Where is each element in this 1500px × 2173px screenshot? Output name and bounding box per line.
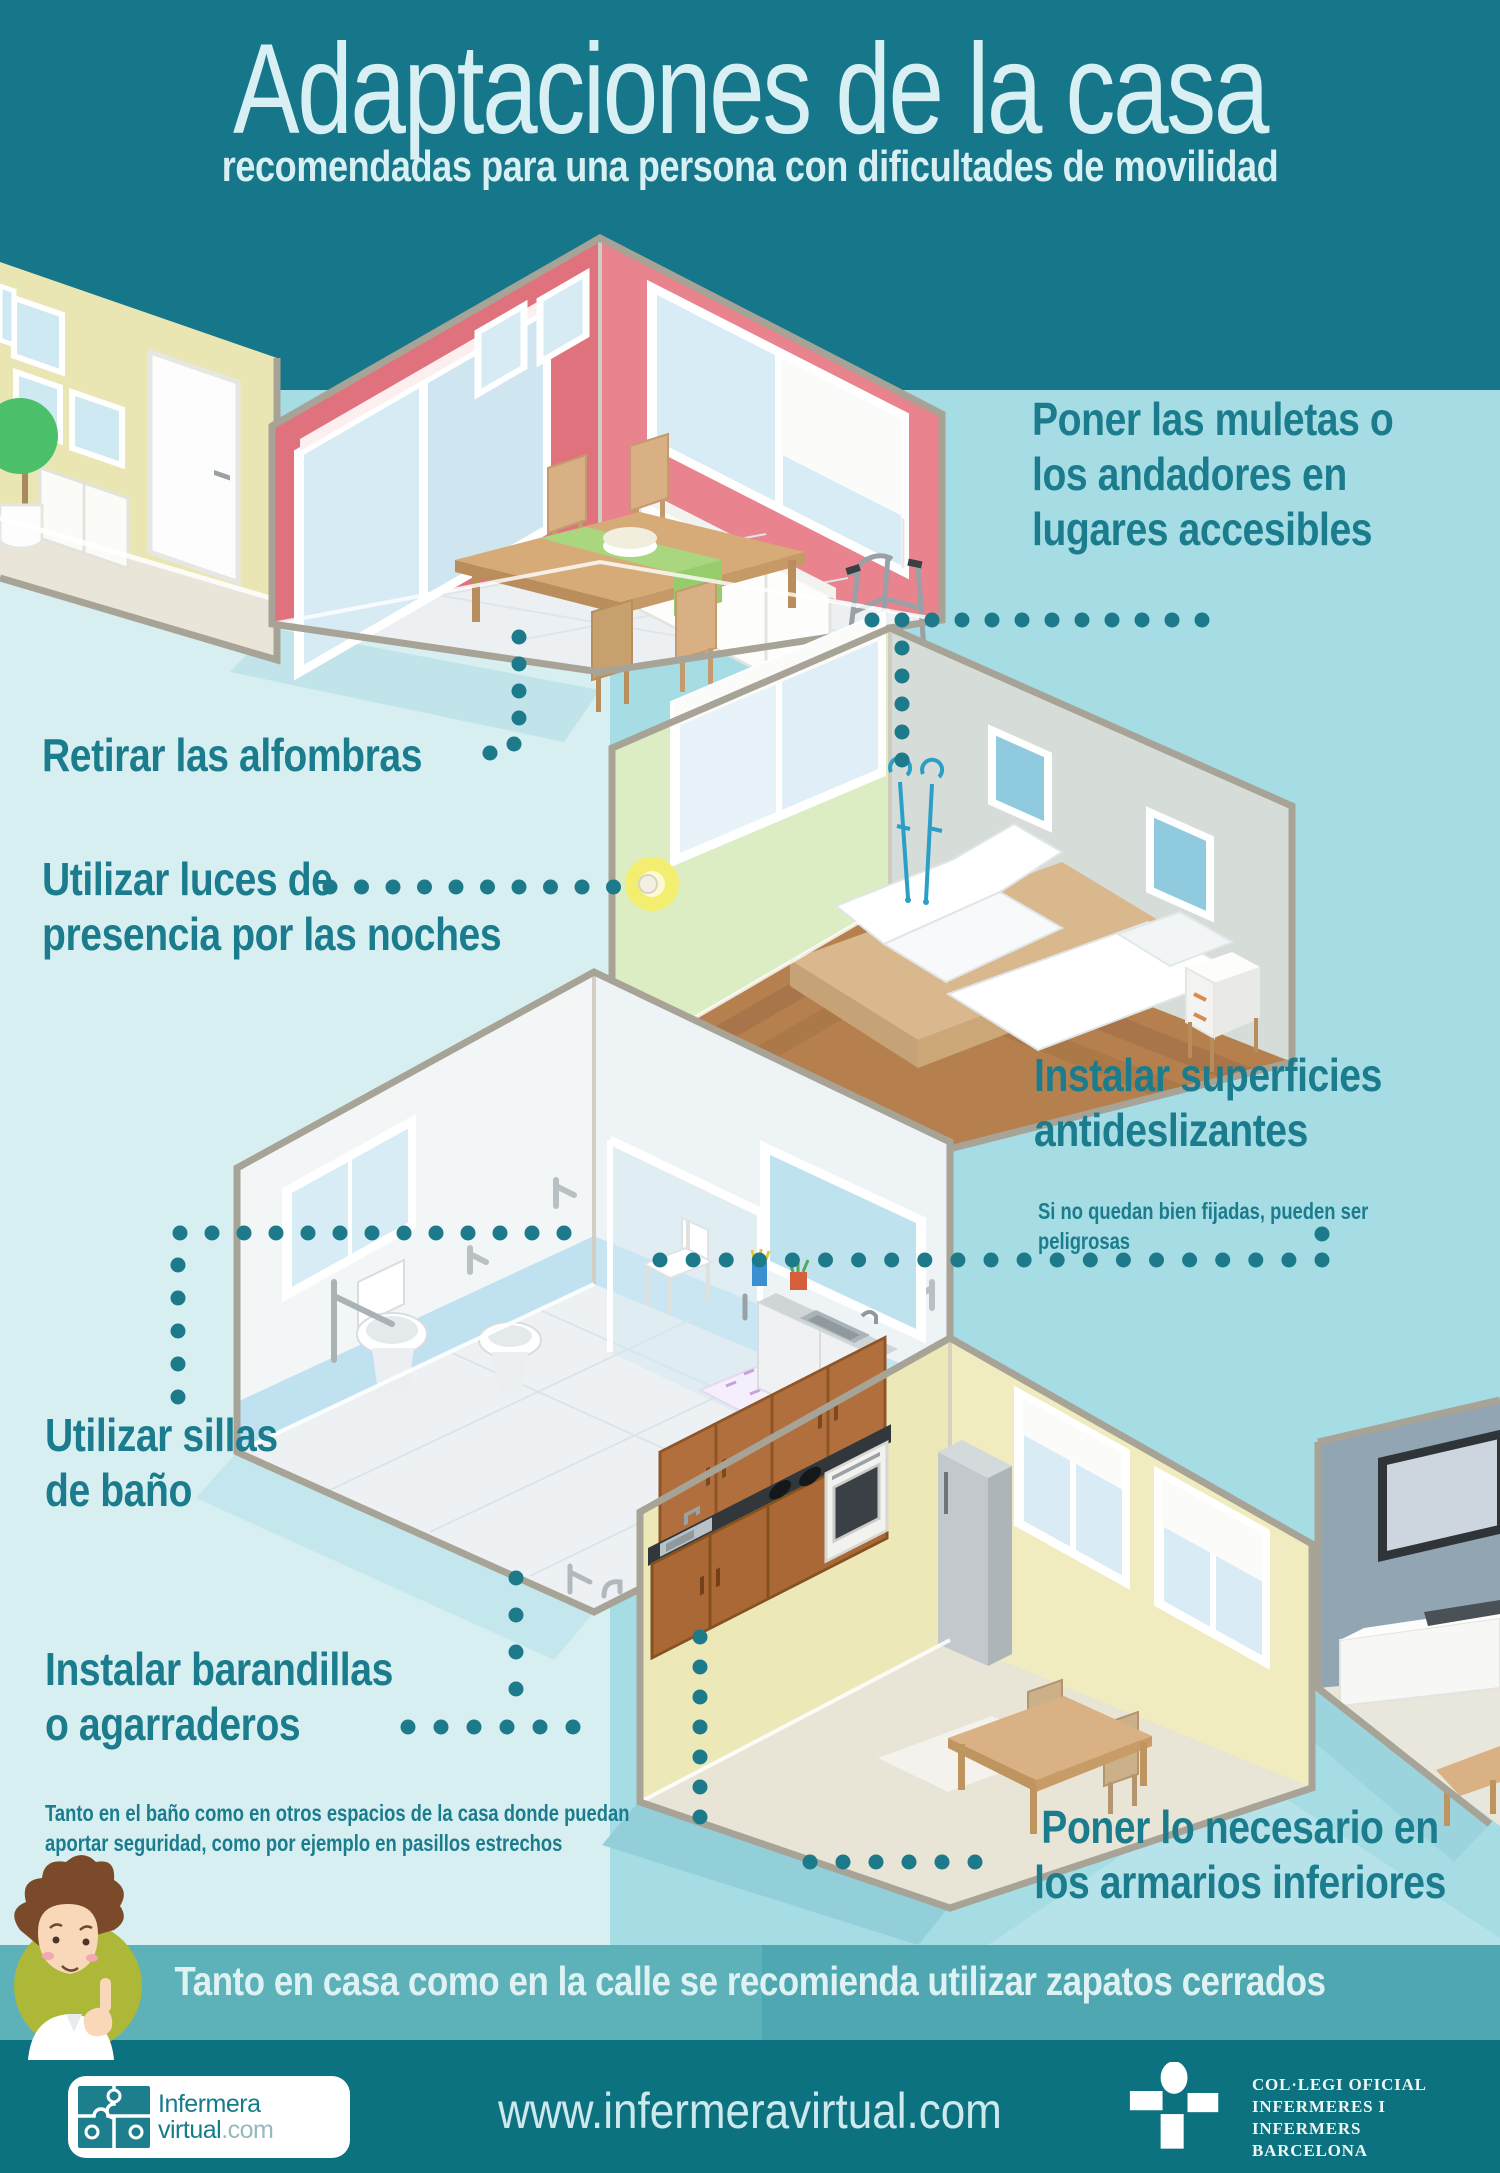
hallway-door — [150, 352, 238, 582]
logo-line1: Infermera — [158, 2090, 260, 2118]
tip-lights: Utilizar luces de presencia por las noch… — [42, 852, 501, 962]
tip-rails-note: Tanto en el baño como en otros espacios … — [45, 1798, 630, 1859]
college-line-2: INFERMERES I INFERMERS — [1252, 2096, 1500, 2140]
tip-crutches: Poner las muletas o los andadores en lug… — [1032, 392, 1393, 558]
tip-surfaces-note: Si no quedan bien fijadas, pueden ser pe… — [1038, 1196, 1408, 1257]
college-line-1: COL·LEGI OFICIAL — [1252, 2074, 1500, 2096]
band-text: Tanto en casa como en la calle se recomi… — [113, 1958, 1388, 2005]
tip-rugs: Retirar las alfombras — [42, 728, 422, 783]
college-cross-icon — [1128, 2062, 1224, 2170]
tip-chairs: Utilizar sillas de baño — [45, 1408, 278, 1518]
logo-line2: virtual — [158, 2116, 221, 2144]
refrigerator — [938, 1440, 1012, 1666]
logo-suffix: .com — [221, 2116, 273, 2144]
infographic-poster: Adaptaciones de la casa recomendadas par… — [0, 0, 1500, 2173]
page-subtitle: recomendadas para una persona con dificu… — [135, 142, 1365, 192]
page-title: Adaptaciones de la casa — [165, 26, 1335, 154]
college-line-3: BARCELONA — [1252, 2140, 1500, 2162]
nightlight-icon — [625, 857, 679, 911]
infermera-virtual-logo[interactable]: Infermera virtual.com — [68, 2076, 350, 2158]
tip-cabinets: Poner lo necesario en los armarios infer… — [1002, 1800, 1478, 1910]
tip-surfaces: Instalar superficies antideslizantes — [1034, 1048, 1382, 1158]
tip-rails: Instalar barandillas o agarraderos — [45, 1642, 393, 1752]
college-logo: COL·LEGI OFICIAL INFERMERES I INFERMERS … — [1128, 2060, 1500, 2170]
puzzle-icon — [78, 2086, 150, 2148]
